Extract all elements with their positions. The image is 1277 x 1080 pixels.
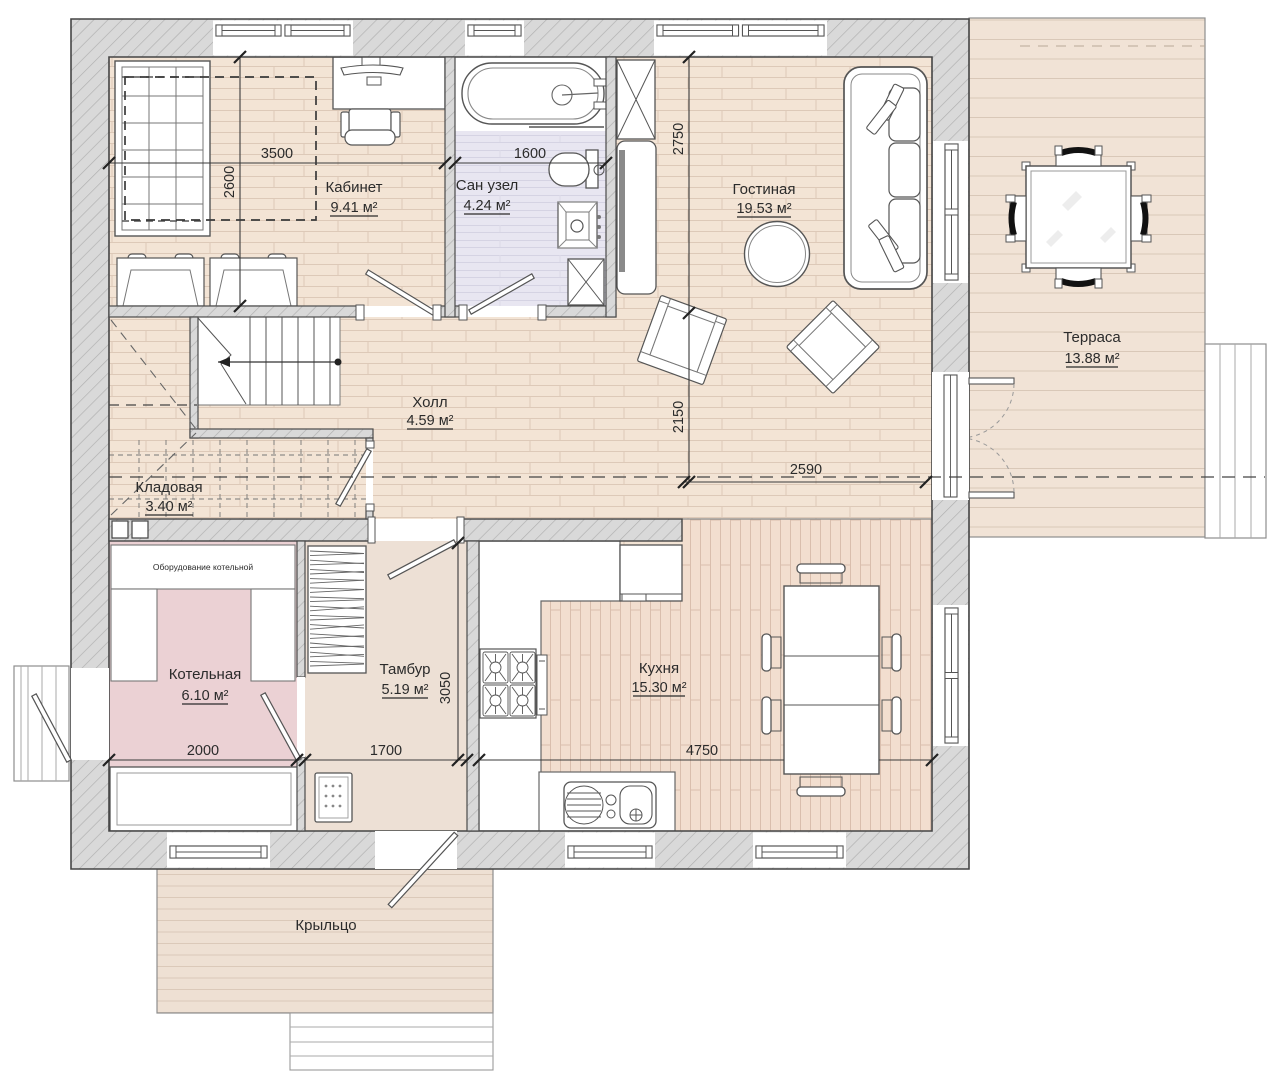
svg-text:Терраса: Терраса [1063,329,1121,346]
svg-text:1700: 1700 [370,743,402,759]
svg-text:19.53 м²: 19.53 м² [736,201,791,217]
svg-text:4.59 м²: 4.59 м² [406,413,453,429]
svg-text:1600: 1600 [514,146,546,162]
svg-text:4750: 4750 [686,743,718,759]
svg-text:Оборудование котельной: Оборудование котельной [153,562,254,572]
svg-text:2590: 2590 [790,462,822,478]
svg-text:2150: 2150 [671,401,687,433]
svg-text:15.30 м²: 15.30 м² [631,680,686,696]
svg-text:Тамбур: Тамбур [380,661,431,678]
svg-text:2600: 2600 [222,166,238,198]
svg-text:2000: 2000 [187,743,219,759]
svg-text:Гостиная: Гостиная [733,181,796,198]
svg-text:2750: 2750 [671,123,687,155]
svg-text:Холл: Холл [412,394,447,411]
svg-text:Кладовая: Кладовая [135,479,202,496]
svg-text:13.88 м²: 13.88 м² [1064,351,1119,367]
svg-text:3500: 3500 [261,146,293,162]
svg-text:Кухня: Кухня [639,660,679,677]
svg-text:3.40 м²: 3.40 м² [145,499,192,515]
svg-text:6.10 м²: 6.10 м² [181,688,228,704]
svg-text:Котельная: Котельная [169,666,242,683]
svg-text:9.41 м²: 9.41 м² [330,200,377,216]
svg-text:5.19 м²: 5.19 м² [381,682,428,698]
svg-text:3050: 3050 [438,672,454,704]
svg-text:Крыльцо: Крыльцо [295,917,356,934]
svg-text:Кабинет: Кабинет [325,179,382,196]
svg-text:Сан узел: Сан узел [456,177,519,194]
svg-text:4.24 м²: 4.24 м² [463,198,510,214]
